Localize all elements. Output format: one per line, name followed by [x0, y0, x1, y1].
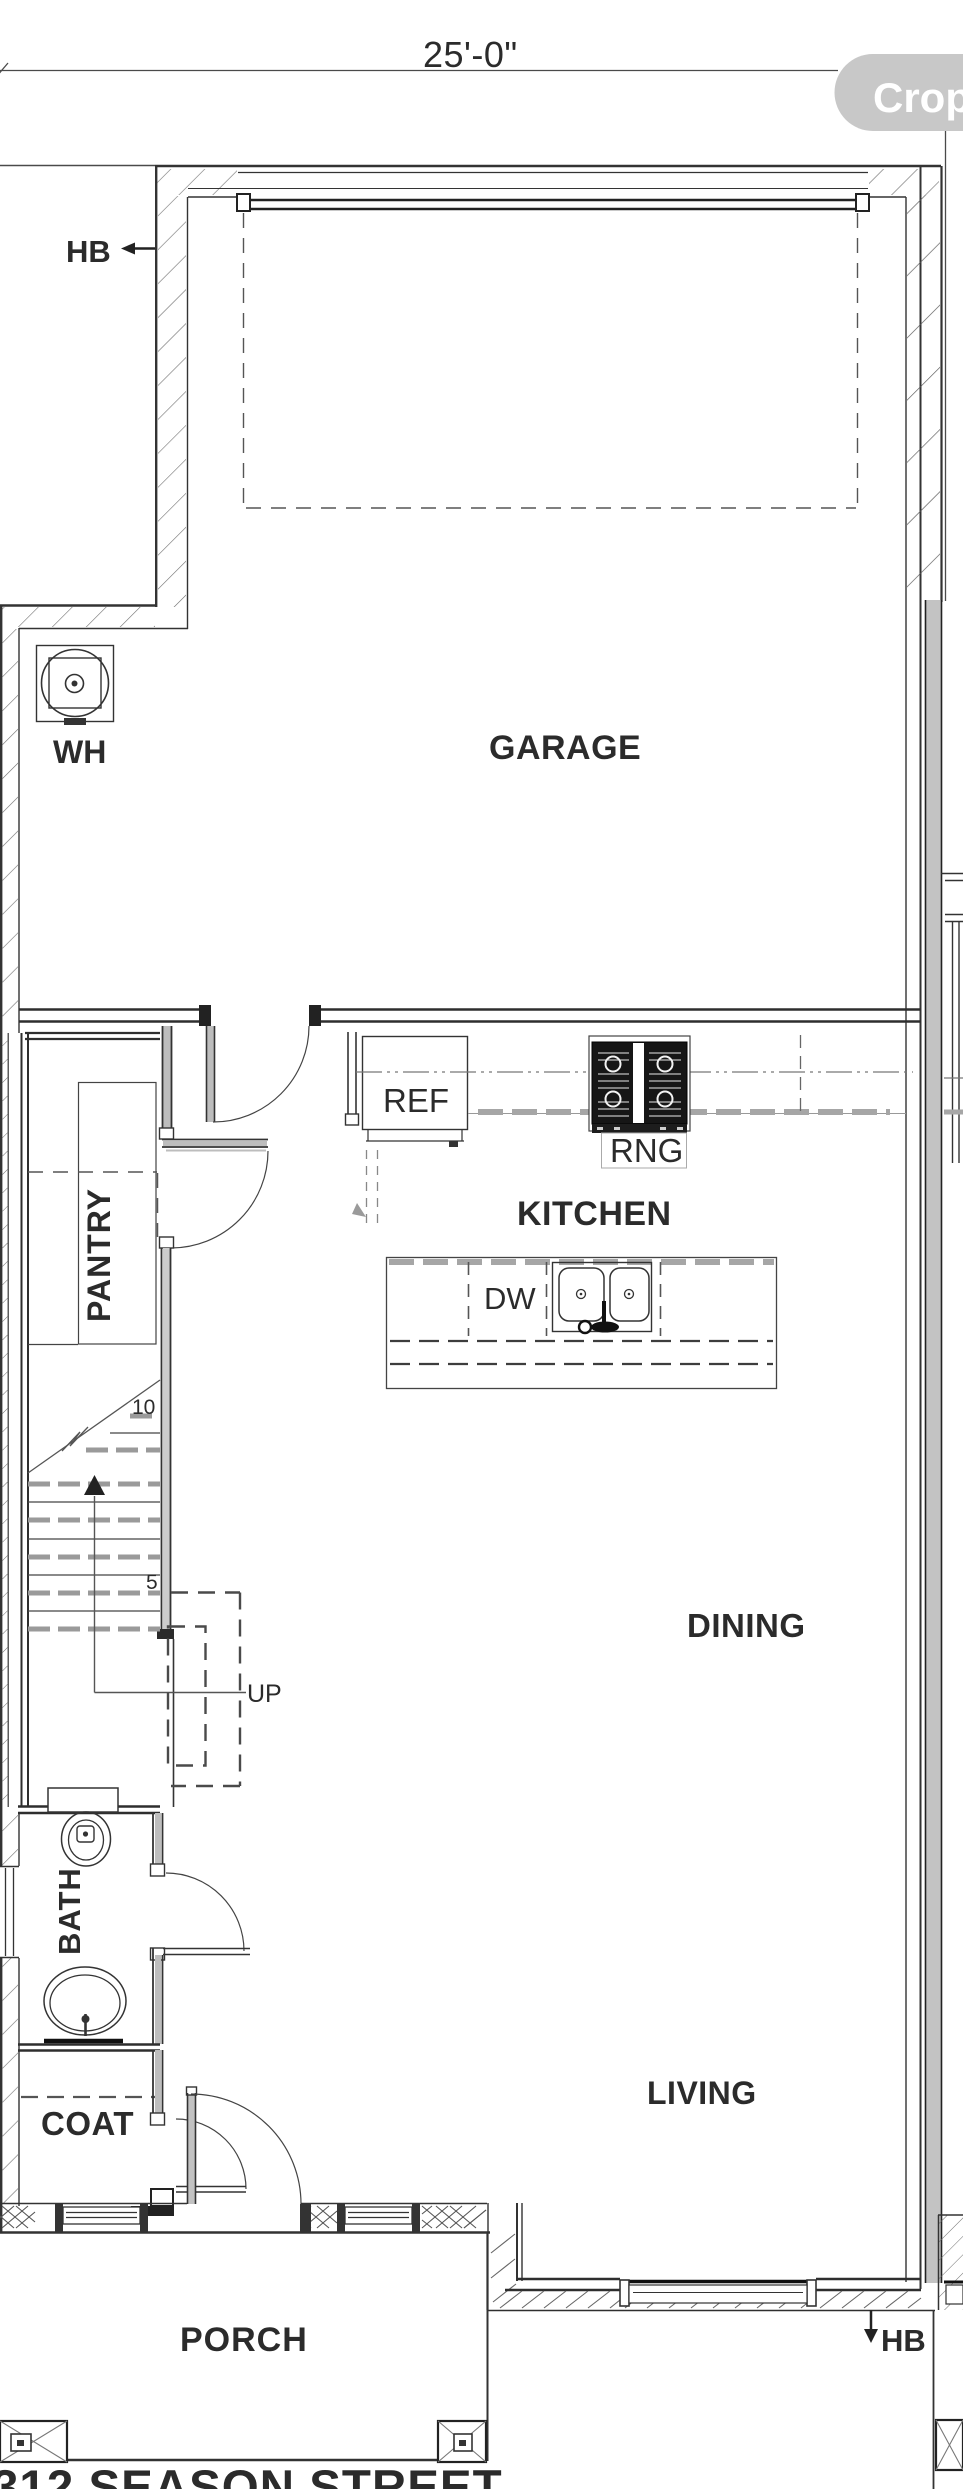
svg-text:REF: REF	[383, 1082, 449, 1119]
svg-text:WH: WH	[53, 734, 106, 770]
svg-text:PANTRY: PANTRY	[81, 1188, 117, 1322]
svg-text:RNG: RNG	[610, 1132, 683, 1169]
svg-text:312 SEASON STREET: 312 SEASON STREET	[0, 2461, 503, 2489]
svg-text:LIVING: LIVING	[647, 2075, 757, 2111]
svg-text:DW: DW	[484, 1281, 536, 1316]
svg-text:BATH: BATH	[52, 1867, 87, 1955]
svg-text:GARAGE: GARAGE	[489, 729, 641, 767]
svg-text:PORCH: PORCH	[180, 2321, 308, 2359]
svg-text:KITCHEN: KITCHEN	[517, 1195, 672, 1233]
svg-text:10: 10	[132, 1396, 155, 1419]
svg-text:HB: HB	[66, 234, 111, 269]
svg-text:25'-0": 25'-0"	[423, 34, 518, 75]
svg-text:Crop: Crop	[873, 74, 963, 121]
svg-text:HB: HB	[881, 2323, 926, 2358]
svg-text:5: 5	[146, 1571, 158, 1594]
svg-text:UP: UP	[247, 1680, 282, 1708]
svg-text:DINING: DINING	[687, 1607, 806, 1644]
svg-text:COAT: COAT	[41, 2105, 134, 2142]
